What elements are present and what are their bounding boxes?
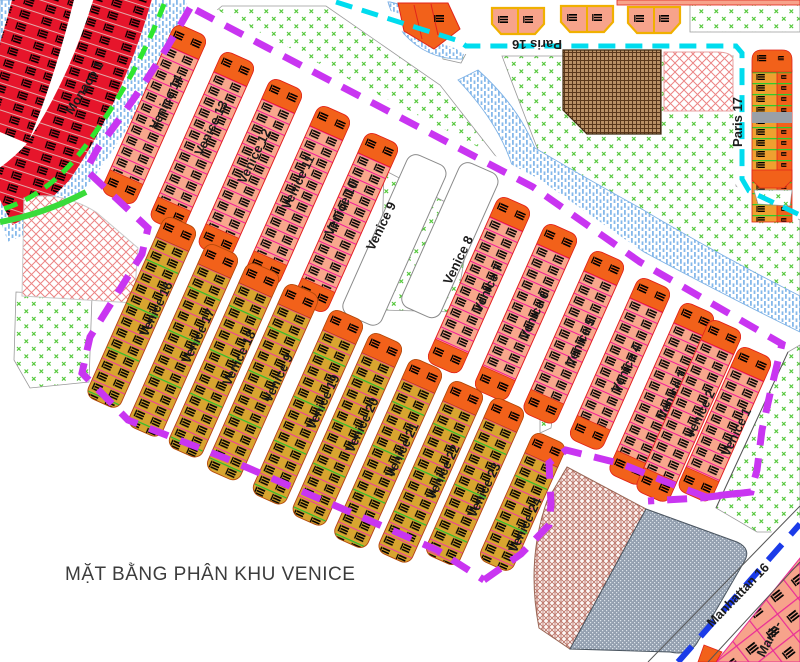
paris16-block	[492, 8, 544, 34]
site-plan-page: Venice 14Venice 13Venice 12Venice 11Veni…	[0, 0, 800, 662]
zone-label-paris-16: Paris 16	[512, 37, 562, 52]
page-title: MẶT BẰNG PHÂN KHU VENICE	[65, 563, 355, 585]
paris16-block	[628, 7, 680, 33]
paris16-block	[561, 6, 613, 32]
parcel-redhatch-northeast	[664, 52, 733, 111]
park-east-corner	[690, 2, 800, 32]
monaco-band-west	[0, 0, 46, 132]
parcel-brown-grid	[563, 50, 661, 134]
zone-label-paris-17: Paris 17	[730, 97, 745, 147]
paris16-blocks	[492, 6, 680, 34]
site-plan-map: Venice 14Venice 13Venice 12Venice 11Veni…	[0, 0, 800, 662]
parcel-top-sliver	[617, 0, 800, 5]
